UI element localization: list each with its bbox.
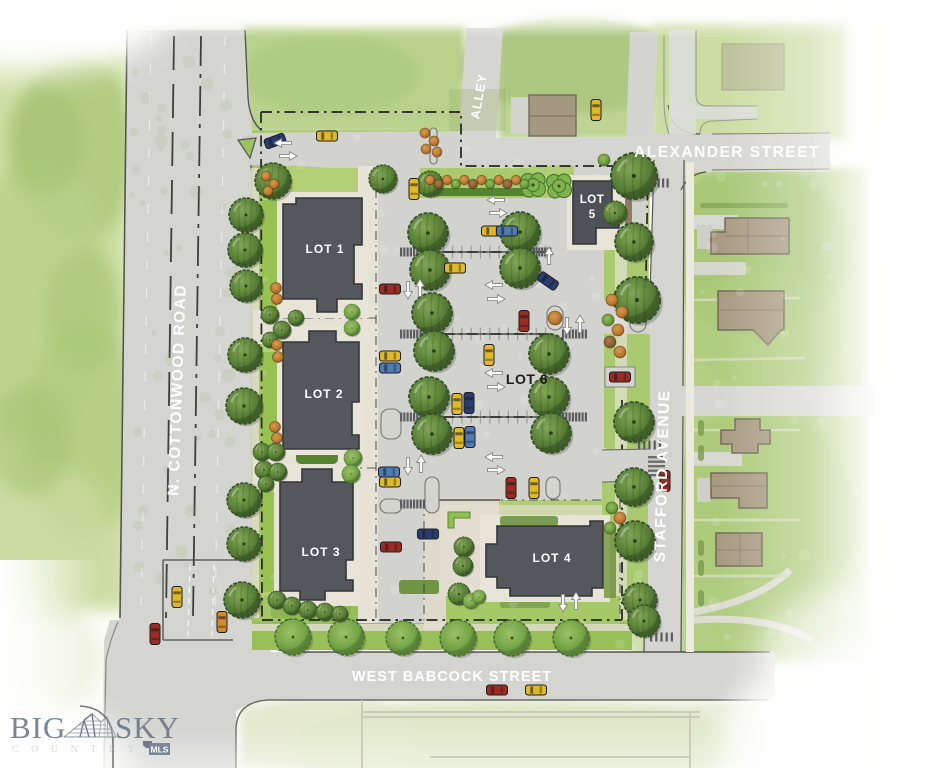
svg-text:LOT: LOT xyxy=(580,194,605,206)
svg-text:SKY: SKY xyxy=(115,710,180,745)
svg-text:LOT 6: LOT 6 xyxy=(506,371,548,387)
svg-text:WEST BABCOCK STREET: WEST BABCOCK STREET xyxy=(352,669,552,685)
svg-text:MLS: MLS xyxy=(151,745,169,755)
svg-text:LOT 3: LOT 3 xyxy=(301,545,340,559)
svg-text:BIG: BIG xyxy=(10,710,66,745)
svg-text:LOT 4: LOT 4 xyxy=(532,551,571,565)
svg-text:LOT 1: LOT 1 xyxy=(305,242,344,256)
svg-text:5: 5 xyxy=(589,209,596,221)
svg-text:COUNTRY: COUNTRY xyxy=(12,744,147,755)
svg-text:LOT 2: LOT 2 xyxy=(304,387,343,401)
